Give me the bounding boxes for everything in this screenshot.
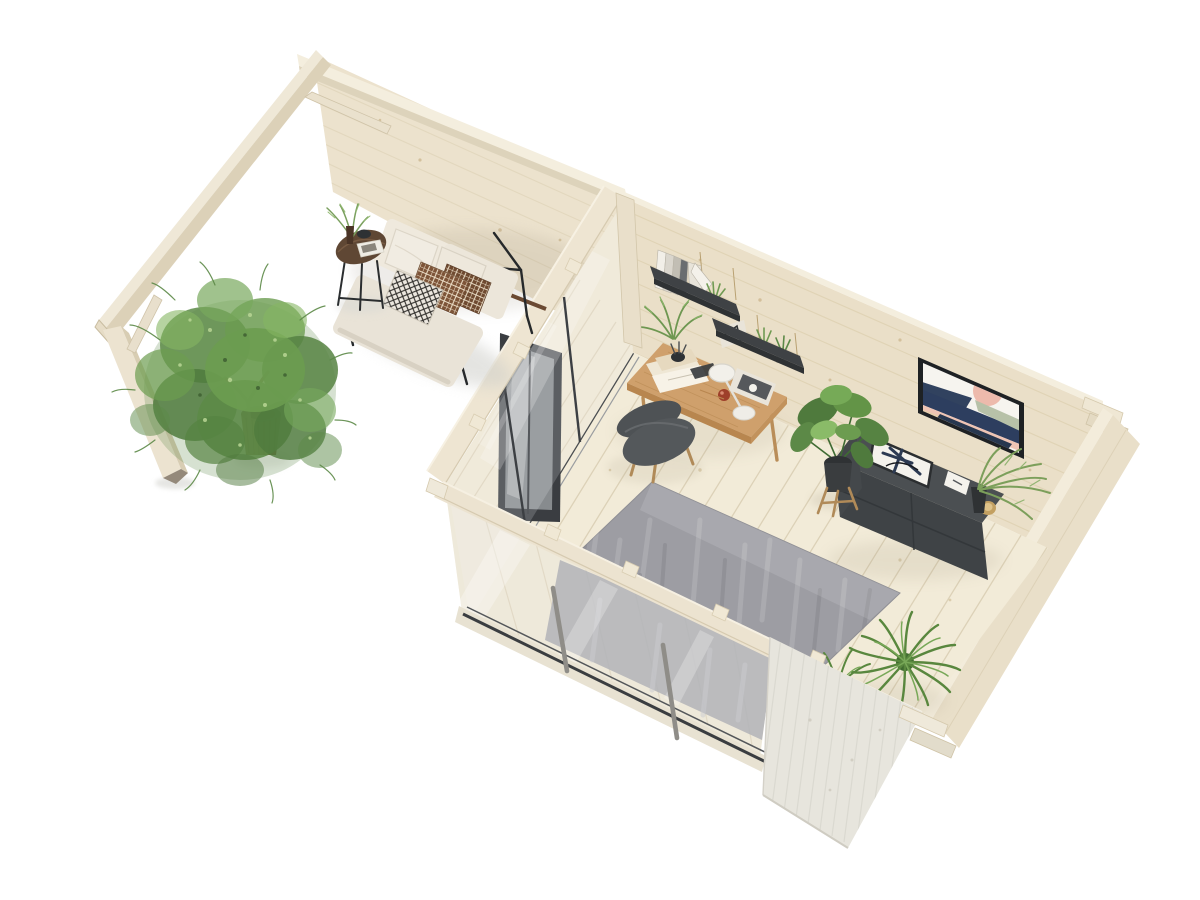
amber-glass <box>718 389 730 401</box>
bottle <box>346 226 354 244</box>
lamp-shade <box>709 364 735 382</box>
lamp-base <box>733 406 755 420</box>
dark-bowl <box>357 230 371 239</box>
render-stage <box>0 0 1200 900</box>
cabin-render <box>0 0 1200 900</box>
